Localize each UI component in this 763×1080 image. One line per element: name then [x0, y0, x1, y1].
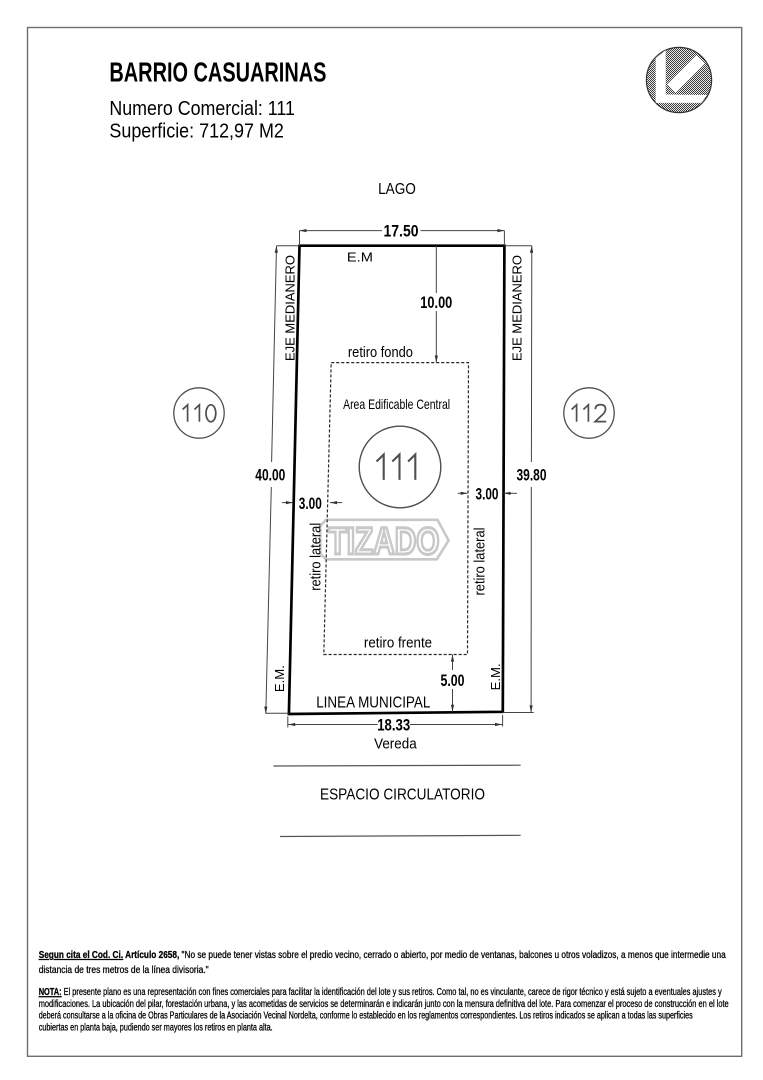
svg-text:E.M.: E.M. [489, 663, 503, 690]
svg-text:EJE MEDIANERO: EJE MEDIANERO [509, 255, 524, 361]
svg-text:retiro frente: retiro frente [364, 636, 432, 652]
svg-text:10.00: 10.00 [420, 293, 452, 312]
svg-text:ESPACIO CIRCULATORIO: ESPACIO CIRCULATORIO [320, 787, 485, 804]
svg-text:NOTA: El presente plano es una: NOTA: El presente plano es una represent… [39, 987, 722, 998]
svg-text:cubiertas en planta baja, pudi: cubiertas en planta baja, pudiendo ser m… [39, 1022, 273, 1033]
svg-text:LINEA MUNICIPAL: LINEA MUNICIPAL [316, 695, 431, 712]
svg-text:retiro fondo: retiro fondo [348, 345, 413, 361]
svg-text:40.00: 40.00 [255, 465, 285, 484]
svg-text:E.M.: E.M. [273, 665, 287, 692]
svg-text:3.00: 3.00 [476, 485, 499, 504]
svg-text:distancia de tres metros de la: distancia de tres metros de la línea div… [39, 965, 209, 976]
svg-text:E.M: E.M [347, 250, 373, 264]
svg-text:39.80: 39.80 [517, 465, 547, 484]
svg-text:LAGO: LAGO [378, 181, 416, 198]
svg-text:retiro lateral: retiro lateral [473, 528, 489, 596]
svg-text:EJE MEDIANERO: EJE MEDIANERO [283, 255, 298, 361]
svg-text:5.00: 5.00 [441, 671, 465, 690]
svg-text:Segun cita el Cod. Ci. Artícul: Segun cita el Cod. Ci. Artículo 2658, "N… [39, 950, 726, 961]
svg-text:Vereda: Vereda [374, 736, 417, 753]
svg-text:deberá consultarse a la oficin: deberá consultarse a la oficina de Obras… [39, 1011, 693, 1022]
svg-text:17.50: 17.50 [384, 222, 419, 241]
svg-text:3.00: 3.00 [299, 494, 322, 513]
svg-text:Numero Comercial: 111: Numero Comercial: 111 [109, 97, 295, 120]
svg-text:TIZADO: TIZADO [329, 521, 440, 563]
svg-text:Superficie: 712,97 M2: Superficie: 712,97 M2 [109, 120, 284, 143]
svg-text:retiro lateral: retiro lateral [308, 523, 324, 591]
svg-text:Area Edificable Central: Area Edificable Central [343, 396, 450, 412]
svg-text:18.33: 18.33 [377, 715, 410, 734]
svg-text:BARRIO CASUARINAS: BARRIO CASUARINAS [109, 57, 326, 88]
svg-text:modificaciones. La ubicación d: modificaciones. La ubicación del pilar, … [39, 999, 729, 1010]
